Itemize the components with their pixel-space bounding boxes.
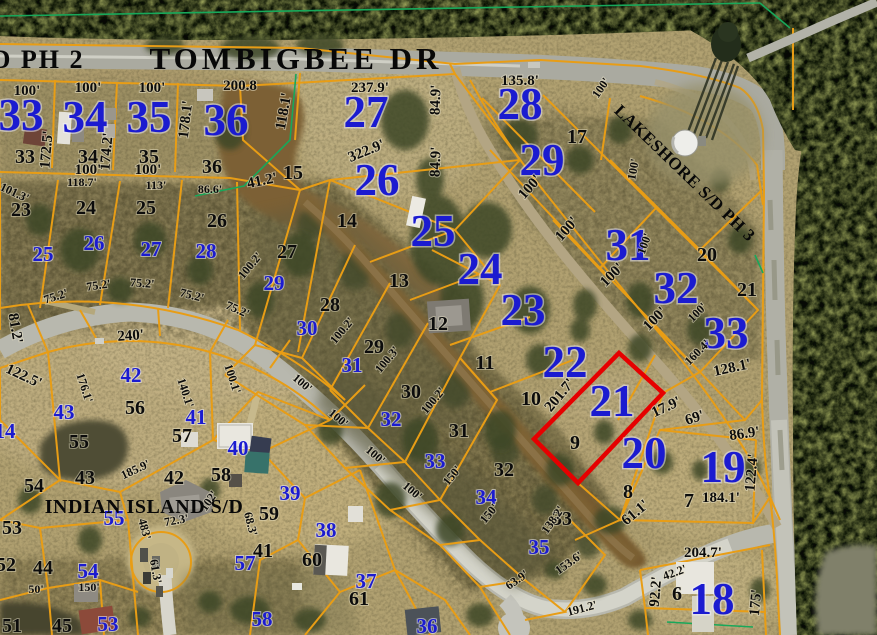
- svg-text:84.9': 84.9': [427, 146, 444, 177]
- svg-text:15: 15: [283, 162, 303, 184]
- svg-text:184.1': 184.1': [702, 490, 740, 506]
- svg-text:14: 14: [337, 210, 357, 232]
- svg-text:24: 24: [76, 197, 96, 219]
- svg-text:53: 53: [2, 517, 22, 539]
- svg-text:26: 26: [207, 210, 227, 232]
- svg-text:43: 43: [54, 400, 75, 424]
- svg-text:31: 31: [342, 353, 363, 377]
- svg-text:100': 100': [75, 80, 102, 96]
- svg-text:26: 26: [355, 155, 400, 205]
- svg-text:58: 58: [211, 464, 231, 486]
- svg-text:24: 24: [458, 244, 503, 294]
- svg-text:50': 50': [28, 582, 43, 596]
- svg-text:29: 29: [520, 135, 565, 185]
- svg-text:204.7': 204.7': [684, 545, 722, 561]
- svg-text:8: 8: [623, 481, 633, 503]
- svg-text:100': 100': [135, 162, 162, 178]
- svg-text:54: 54: [24, 475, 44, 497]
- svg-text:35: 35: [529, 535, 550, 559]
- svg-text:122.4': 122.4': [742, 453, 761, 492]
- svg-text:51: 51: [2, 615, 22, 635]
- svg-text:20: 20: [622, 428, 667, 478]
- svg-text:237.9': 237.9': [351, 80, 389, 96]
- svg-text:36: 36: [202, 156, 222, 178]
- svg-text:58: 58: [252, 607, 273, 631]
- svg-text:35: 35: [127, 92, 172, 142]
- svg-text:59: 59: [259, 503, 279, 525]
- svg-text:29: 29: [264, 271, 285, 295]
- svg-text:175': 175': [747, 589, 765, 617]
- svg-text:200.8: 200.8: [223, 78, 257, 94]
- svg-text:57: 57: [235, 551, 256, 575]
- svg-text:13: 13: [389, 270, 409, 292]
- svg-text:INDIAN ISLAND S/D: INDIAN ISLAND S/D: [45, 496, 244, 518]
- svg-text:84.9': 84.9': [427, 84, 444, 115]
- svg-text:118.7': 118.7': [67, 175, 97, 189]
- svg-text:30: 30: [297, 316, 318, 340]
- svg-text:11: 11: [476, 352, 495, 374]
- svg-text:27: 27: [277, 241, 297, 263]
- svg-text:36: 36: [204, 95, 249, 145]
- svg-text:41: 41: [253, 540, 273, 562]
- svg-text:92.2': 92.2': [647, 576, 666, 608]
- svg-text:25: 25: [33, 242, 54, 266]
- svg-text:55: 55: [69, 431, 89, 453]
- svg-text:86.6': 86.6': [198, 182, 222, 196]
- svg-text:172.5': 172.5': [37, 130, 56, 169]
- svg-text:43: 43: [75, 467, 95, 489]
- svg-text:21: 21: [737, 279, 757, 301]
- svg-text:23: 23: [501, 285, 546, 335]
- svg-text:9: 9: [570, 432, 580, 454]
- svg-text:20: 20: [697, 244, 717, 266]
- svg-text:60: 60: [302, 549, 322, 571]
- svg-text:38: 38: [316, 518, 337, 542]
- svg-text:32: 32: [494, 459, 514, 481]
- svg-text:19: 19: [701, 442, 746, 492]
- svg-text:28: 28: [320, 294, 340, 316]
- svg-text:135.8': 135.8': [501, 73, 539, 89]
- svg-text:D PH 2: D PH 2: [0, 45, 84, 74]
- svg-text:100': 100': [14, 83, 41, 99]
- svg-text:240': 240': [117, 327, 145, 345]
- svg-text:33: 33: [704, 308, 749, 358]
- svg-text:21: 21: [590, 376, 635, 426]
- svg-text:31: 31: [449, 420, 469, 442]
- svg-text:36: 36: [417, 614, 438, 635]
- svg-text:42: 42: [164, 467, 184, 489]
- svg-text:44: 44: [33, 557, 53, 579]
- svg-text:32: 32: [381, 407, 402, 431]
- svg-text:6: 6: [672, 583, 682, 605]
- svg-text:45: 45: [52, 615, 72, 635]
- svg-text:150': 150': [78, 580, 99, 594]
- svg-text:26: 26: [84, 231, 105, 255]
- svg-text:14: 14: [0, 419, 16, 443]
- svg-text:18: 18: [690, 574, 735, 624]
- svg-text:40: 40: [228, 436, 249, 460]
- svg-text:39: 39: [280, 481, 301, 505]
- svg-text:25: 25: [411, 206, 456, 256]
- svg-text:33: 33: [425, 449, 446, 473]
- svg-text:75.2': 75.2': [130, 275, 155, 291]
- svg-text:56: 56: [125, 397, 145, 419]
- svg-text:30: 30: [401, 381, 421, 403]
- svg-text:33: 33: [15, 146, 35, 168]
- svg-text:27: 27: [141, 237, 162, 261]
- svg-text:113': 113': [146, 178, 167, 192]
- svg-text:42: 42: [121, 363, 142, 387]
- svg-text:25: 25: [136, 197, 156, 219]
- svg-text:100': 100': [139, 80, 166, 96]
- svg-text:37: 37: [356, 569, 377, 593]
- svg-text:7: 7: [684, 490, 694, 512]
- svg-text:17: 17: [567, 126, 587, 148]
- svg-text:53: 53: [98, 612, 119, 635]
- svg-text:12: 12: [428, 313, 448, 335]
- svg-text:28: 28: [196, 239, 217, 263]
- svg-text:52: 52: [0, 554, 16, 576]
- svg-text:10: 10: [521, 388, 541, 410]
- svg-text:TOMBIGBEE DR: TOMBIGBEE DR: [150, 41, 443, 76]
- svg-text:41: 41: [186, 405, 207, 429]
